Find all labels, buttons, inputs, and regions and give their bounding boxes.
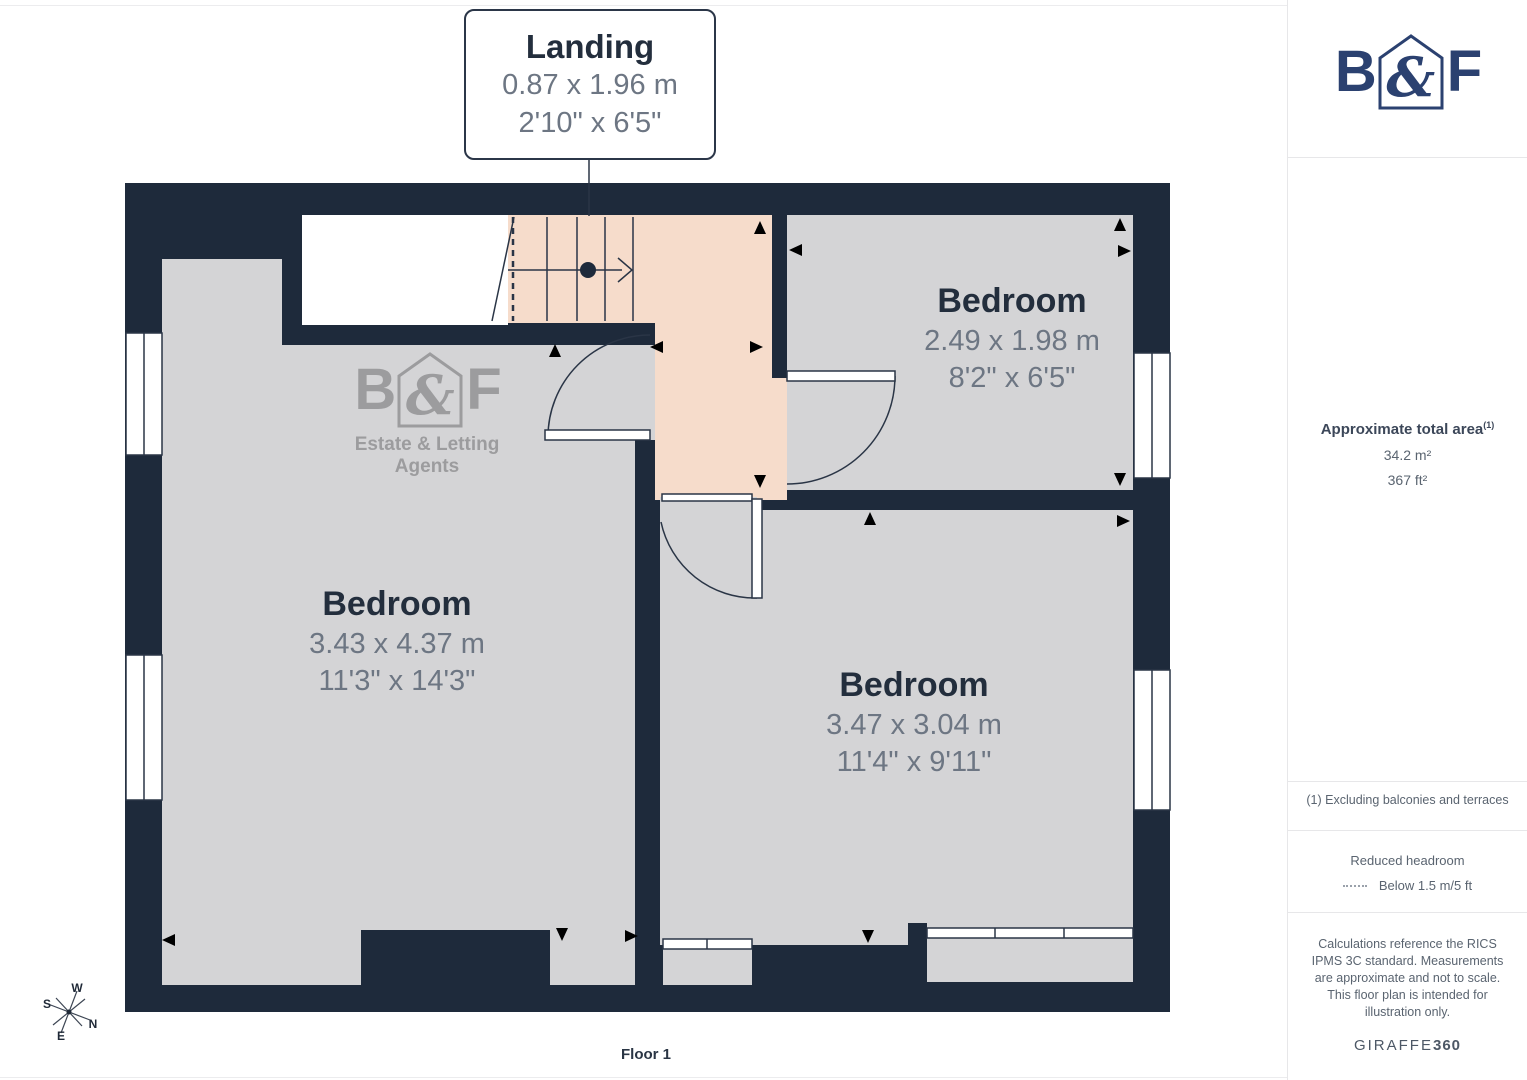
sidebar-divider bbox=[1288, 157, 1527, 158]
window-right-top bbox=[1134, 353, 1170, 478]
compass: W S N E bbox=[43, 981, 97, 1043]
sidebar-logo: B & F bbox=[1288, 34, 1527, 110]
window-left-bottom bbox=[126, 655, 162, 800]
total-area-imperial: 367 ft² bbox=[1288, 472, 1527, 488]
house-outline-icon: & bbox=[1378, 34, 1444, 110]
dotted-line-icon bbox=[1343, 885, 1367, 887]
landing-metric: 0.87 x 1.96 m bbox=[502, 67, 678, 105]
window-right-bottom bbox=[1134, 670, 1170, 810]
total-area-metric: 34.2 m² bbox=[1288, 447, 1527, 463]
watermark-tagline: Estate & Letting Agents bbox=[324, 434, 530, 478]
window-bay-bottom-left bbox=[663, 939, 752, 949]
landing-imperial: 2'10" x 6'5" bbox=[519, 105, 662, 143]
total-area-title: Approximate total area(1) bbox=[1288, 420, 1527, 438]
sidebar-divider bbox=[1288, 830, 1527, 831]
giraffe360-brand: GIRAFFE360 bbox=[1288, 1037, 1527, 1054]
window-bay-bottom-right bbox=[927, 928, 1133, 938]
sidebar-divider bbox=[1288, 912, 1527, 913]
room-label-bedroom-left: Bedroom 3.43 x 4.37 m 11'3" x 14'3" bbox=[309, 583, 485, 701]
area-footnote: (1) Excluding balconies and terraces bbox=[1288, 793, 1527, 807]
legend-title: Reduced headroom bbox=[1288, 853, 1527, 868]
stair-direction-dot bbox=[580, 262, 596, 278]
compass-south: S bbox=[43, 997, 51, 1011]
disclaimer-text: Calculations reference the RICS IPMS 3C … bbox=[1309, 936, 1506, 1021]
floorplan-drawing: W S N E bbox=[0, 0, 1287, 1080]
total-area-block: Approximate total area(1) 34.2 m² 367 ft… bbox=[1288, 420, 1527, 488]
floorplan-page: W S N E Landing 0.87 x 1.96 m 2'10" x 6'… bbox=[0, 0, 1527, 1080]
floorplan-canvas: W S N E Landing 0.87 x 1.96 m 2'10" x 6'… bbox=[0, 0, 1287, 1080]
compass-west: W bbox=[71, 981, 83, 995]
stair-partition-wall bbox=[772, 215, 787, 378]
room-label-bedroom-top-right: Bedroom 2.49 x 1.98 m 8'2" x 6'5" bbox=[924, 280, 1100, 398]
brand-bf-logo: B & F bbox=[1335, 34, 1480, 110]
room-label-bedroom-bottom-right: Bedroom 3.47 x 3.04 m 11'4" x 9'11" bbox=[826, 664, 1002, 782]
sidebar-divider bbox=[1288, 781, 1527, 782]
floor-label: Floor 1 bbox=[621, 1046, 671, 1063]
landing-name: Landing bbox=[526, 26, 654, 67]
legend-item: Below 1.5 m/5 ft bbox=[1288, 878, 1527, 893]
compass-north: N bbox=[89, 1017, 98, 1031]
watermark-bf-logo: B & F bbox=[324, 352, 530, 428]
footnote-marker: (1) bbox=[1483, 420, 1494, 430]
stairwell-void bbox=[302, 215, 508, 325]
watermark: B & F Estate & Letting Agents bbox=[324, 352, 530, 478]
landing-floor bbox=[655, 323, 787, 500]
landing-callout: Landing 0.87 x 1.96 m 2'10" x 6'5" bbox=[464, 9, 716, 160]
compass-east: E bbox=[57, 1029, 65, 1043]
info-sidebar: B & F Approximate total area(1) 34.2 m² … bbox=[1287, 0, 1527, 1080]
window-left-top bbox=[126, 333, 162, 455]
house-outline-icon: & bbox=[397, 352, 463, 428]
